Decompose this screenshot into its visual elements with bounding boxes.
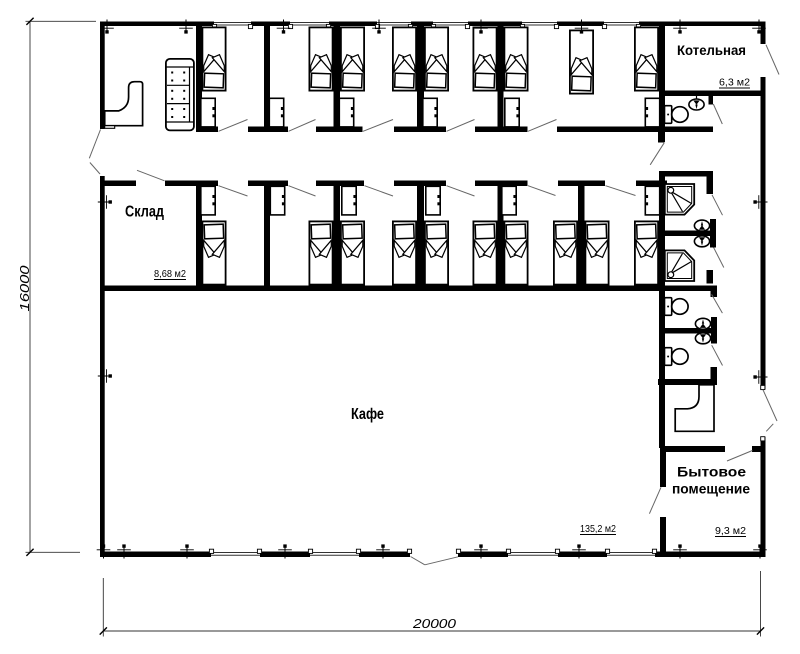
- svg-text:Склад: Склад: [125, 204, 164, 221]
- svg-text:20000: 20000: [412, 616, 457, 631]
- svg-text:16000: 16000: [17, 265, 32, 312]
- svg-text:помещение: помещение: [672, 481, 750, 497]
- svg-text:6,3 м2: 6,3 м2: [719, 77, 750, 89]
- svg-text:9,3 м2: 9,3 м2: [715, 525, 746, 537]
- svg-text:Бытовое: Бытовое: [677, 464, 746, 480]
- svg-text:Кафе: Кафе: [351, 406, 384, 423]
- svg-text:Котельная: Котельная: [677, 42, 746, 58]
- svg-text:135,2 м2: 135,2 м2: [580, 523, 616, 535]
- svg-text:8,68 м2: 8,68 м2: [154, 268, 186, 280]
